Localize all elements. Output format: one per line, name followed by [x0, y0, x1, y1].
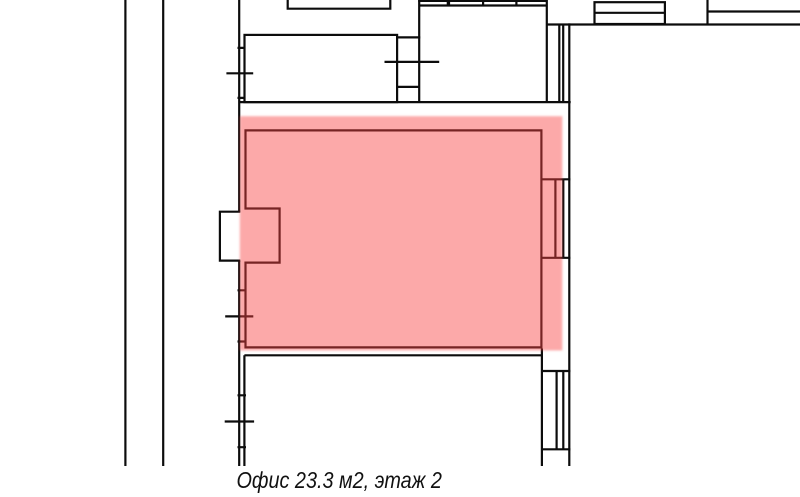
- svg-text:Офис 23.3 м2, этаж 2: Офис 23.3 м2, этаж 2: [237, 468, 442, 494]
